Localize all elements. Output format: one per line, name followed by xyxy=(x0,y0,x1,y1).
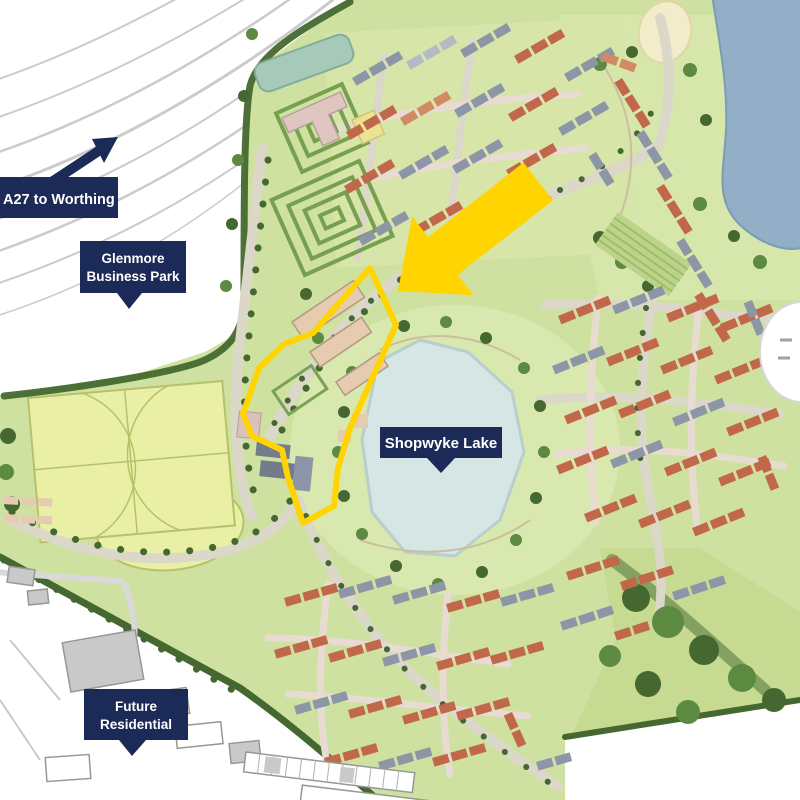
future-residential-label-line2: Residential xyxy=(100,717,172,732)
glenmore-label-line2: Business Park xyxy=(86,269,180,284)
shopwyke-lake-label-text: Shopwyke Lake xyxy=(385,435,498,452)
masterplan-canvas: A27 to Worthing Glenmore Business Park S… xyxy=(0,0,800,800)
a27-label-text: A27 to Worthing xyxy=(3,192,115,208)
a27-label: A27 to Worthing xyxy=(0,177,118,218)
glenmore-label-line1: Glenmore xyxy=(101,251,165,266)
future-residential-label-line1: Future xyxy=(115,699,157,714)
masterplan-map: A27 to Worthing Glenmore Business Park S… xyxy=(0,0,800,800)
